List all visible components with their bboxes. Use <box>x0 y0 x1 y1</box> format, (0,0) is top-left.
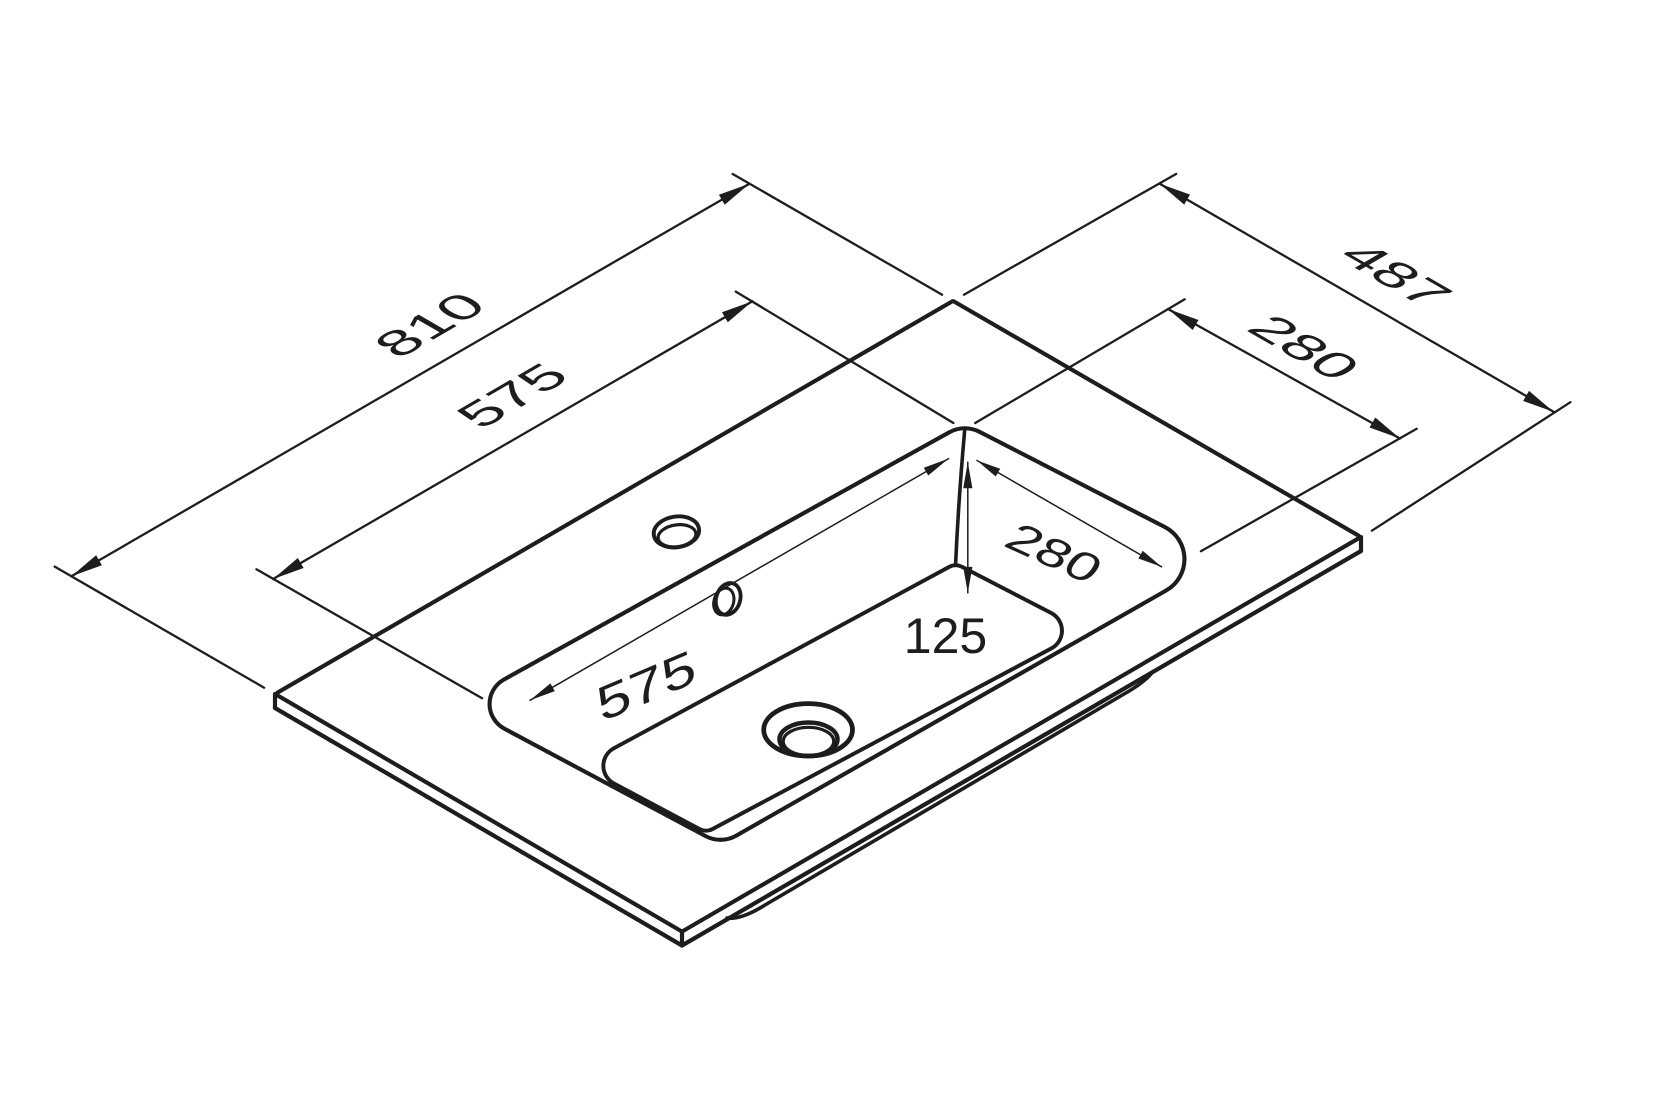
svg-text:125: 125 <box>904 608 987 664</box>
